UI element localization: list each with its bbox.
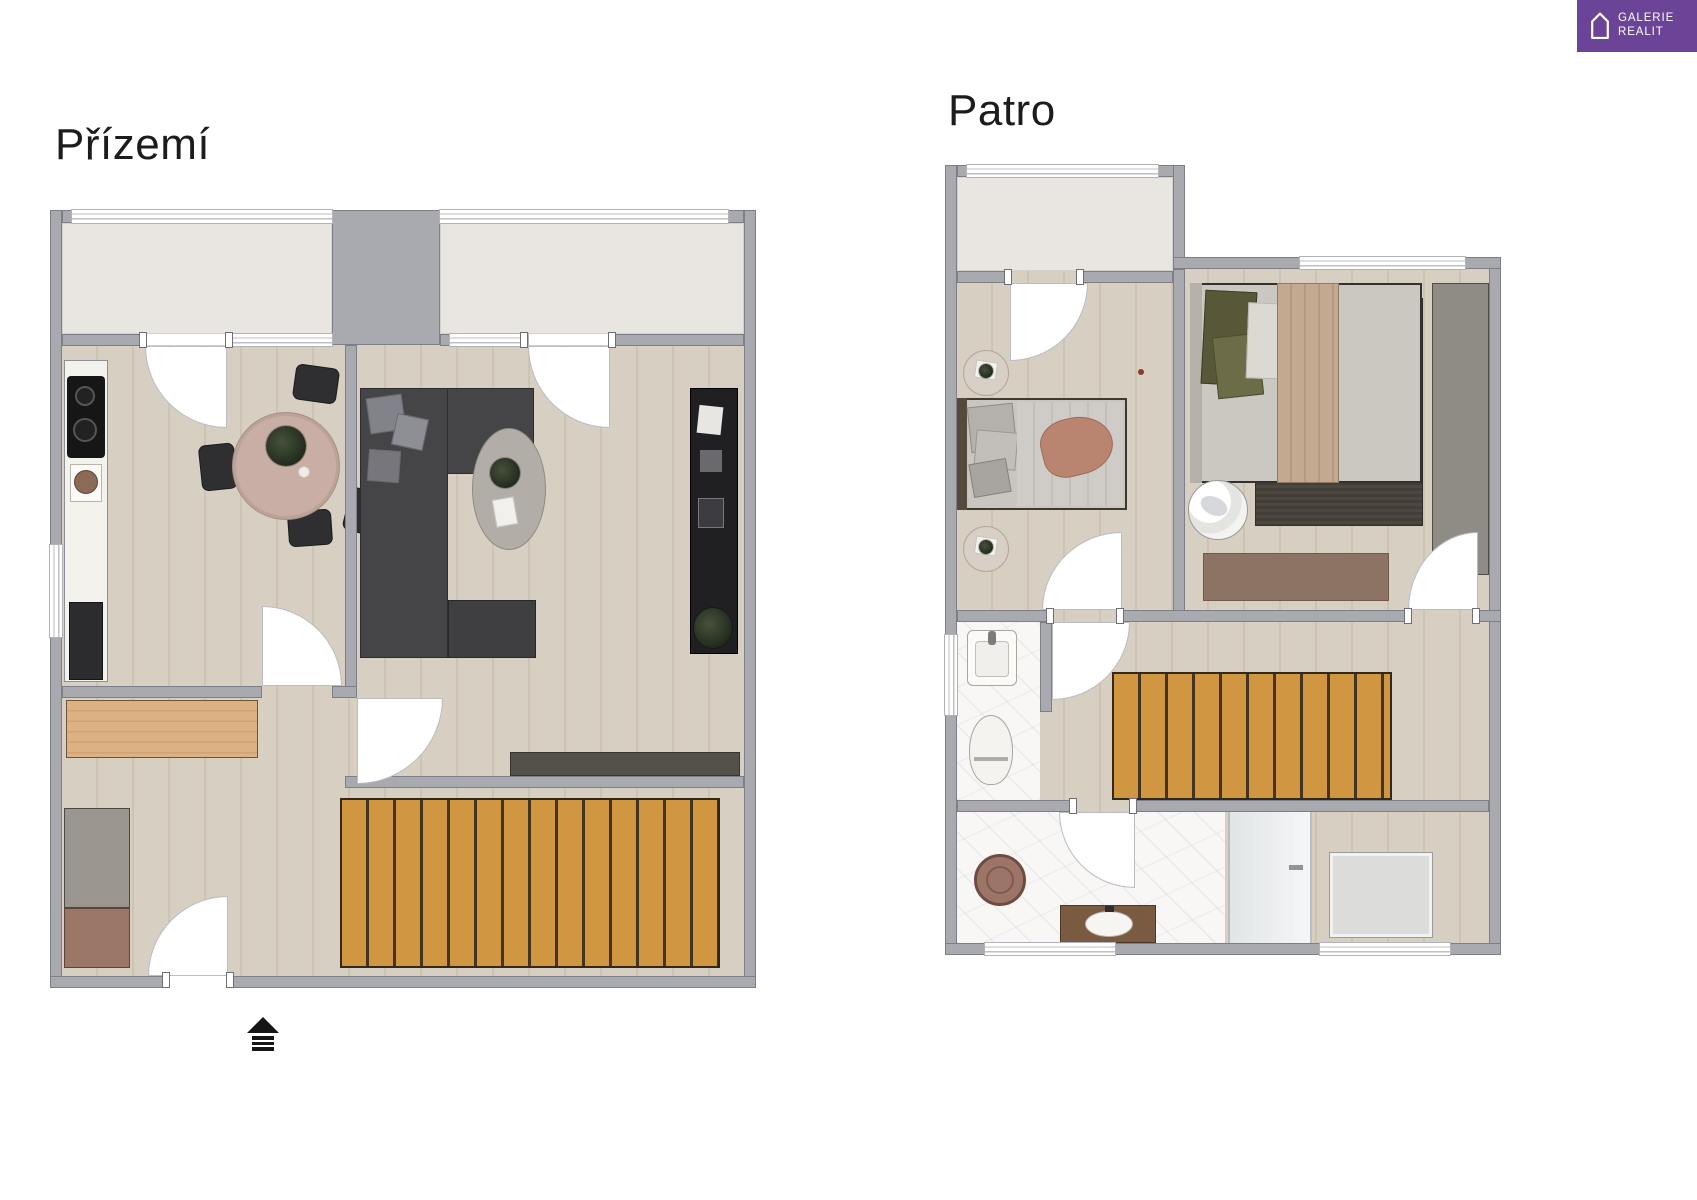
sofa-ottoman [448,600,536,658]
door-jamb [1129,798,1137,814]
door-jamb [139,332,147,348]
balcony-floor [440,223,744,334]
wall-segment [62,686,262,698]
wall-segment [1450,943,1501,955]
sideboard [510,752,740,776]
brand-line2: REALIT [1618,26,1674,40]
bed-headboard [957,398,967,510]
sink-bowl [74,470,98,494]
wall-segment [1465,257,1501,269]
stool-ring [986,866,1014,894]
ceiling-light-dot [1138,369,1144,375]
floorplan-page: { "header": { "ground_floor_title": "Pří… [0,0,1697,1200]
door-handle [1289,865,1303,870]
faucet-icon [988,631,996,645]
window [967,165,1158,177]
window [945,635,957,715]
wall-segment [945,165,957,955]
entrance-arrow-bar [252,1042,274,1046]
bed-blanket-tan [1277,283,1339,483]
window [985,943,1115,955]
door-jamb [1076,269,1084,285]
staircase [1112,672,1392,800]
window [450,334,528,346]
burner-icon [73,418,97,442]
balcony-floor [957,177,1173,271]
wall-segment [228,976,756,988]
brand-name: GALERIE REALIT [1618,12,1674,40]
wall-segment [1173,257,1300,269]
coffee-table-book [492,496,519,527]
wall-segment [62,334,145,346]
wall-segment [1135,800,1489,812]
wall-segment [1080,271,1173,283]
door-jamb [226,972,234,988]
brand-logo: GALERIE REALIT [1577,0,1697,52]
oven-appliance [69,602,103,680]
bed-pillow [968,458,1011,498]
door-jamb [1472,608,1480,624]
wall-segment [332,210,440,345]
wall-segment [957,165,967,177]
bench-rug-brown [1203,553,1389,601]
table-dish [298,466,310,478]
wall-segment [332,686,357,698]
burner-icon [75,386,95,406]
window [50,545,62,637]
staircase [340,798,720,968]
wall-segment [1115,943,1320,955]
shelf-item [698,498,724,528]
table-plant [979,364,993,378]
wall-segment [744,210,756,988]
floor-plant [694,608,732,648]
brand-line1: GALERIE [1618,12,1674,26]
door-jamb [608,332,616,348]
door-jamb [1069,798,1077,814]
door-jamb [162,972,170,988]
sofa-pillow [391,413,429,451]
wall-segment [957,271,1010,283]
ground-floor-plan [50,210,756,988]
wall-segment [957,610,1052,622]
door-jamb [1004,269,1012,285]
wall-segment [440,334,450,346]
wardrobe-gray [64,808,130,908]
wc-sink-basin [975,641,1009,677]
table-plant [979,540,993,554]
door-jamb [225,332,233,348]
shelf-item [700,450,722,472]
window [227,334,332,346]
door-jamb [520,332,528,348]
wall-segment [345,776,744,788]
window [72,210,332,223]
dining-chair [292,363,341,405]
toilet-seat-line [974,757,1008,761]
wall-segment [1173,269,1185,622]
wall-segment [610,334,744,346]
entrance-arrow-bar [252,1047,274,1051]
entry-bench [66,700,258,758]
wall-segment [1122,610,1408,622]
shower-tray [1330,853,1432,937]
upper-floor-plan [945,165,1501,955]
entrance-arrow-bar [252,1036,274,1040]
wardrobe [1432,283,1489,575]
coffee-table-plant [490,458,520,488]
balcony-floor [62,223,332,334]
upper-floor-title: Patro [948,86,1056,136]
wall-segment [50,976,168,988]
coffee-table [472,428,546,550]
window [440,210,728,223]
door-jamb [1116,608,1124,624]
wall-segment [945,943,985,955]
door-jamb [1046,608,1054,624]
wall-segment [1040,622,1052,712]
vanity-sink [1085,911,1133,937]
window [1320,943,1450,955]
wall-segment [728,210,744,223]
ground-floor-title: Přízemí [55,120,210,170]
entrance-arrow-head [247,1017,279,1033]
wall-segment [1489,257,1501,955]
door-jamb [1404,608,1412,624]
toilet [969,715,1013,785]
table-plant [266,426,306,466]
wall-segment [1478,610,1501,622]
faucet-icon [1105,906,1114,912]
sofa-pillow [367,449,401,483]
wardrobe-brown [64,908,130,968]
wall-segment [957,800,1075,812]
shower-door-panel [1228,812,1312,943]
window [1300,257,1465,269]
shelf-item [697,405,724,435]
wall-segment [345,345,357,698]
house-outline-icon [1589,11,1611,41]
